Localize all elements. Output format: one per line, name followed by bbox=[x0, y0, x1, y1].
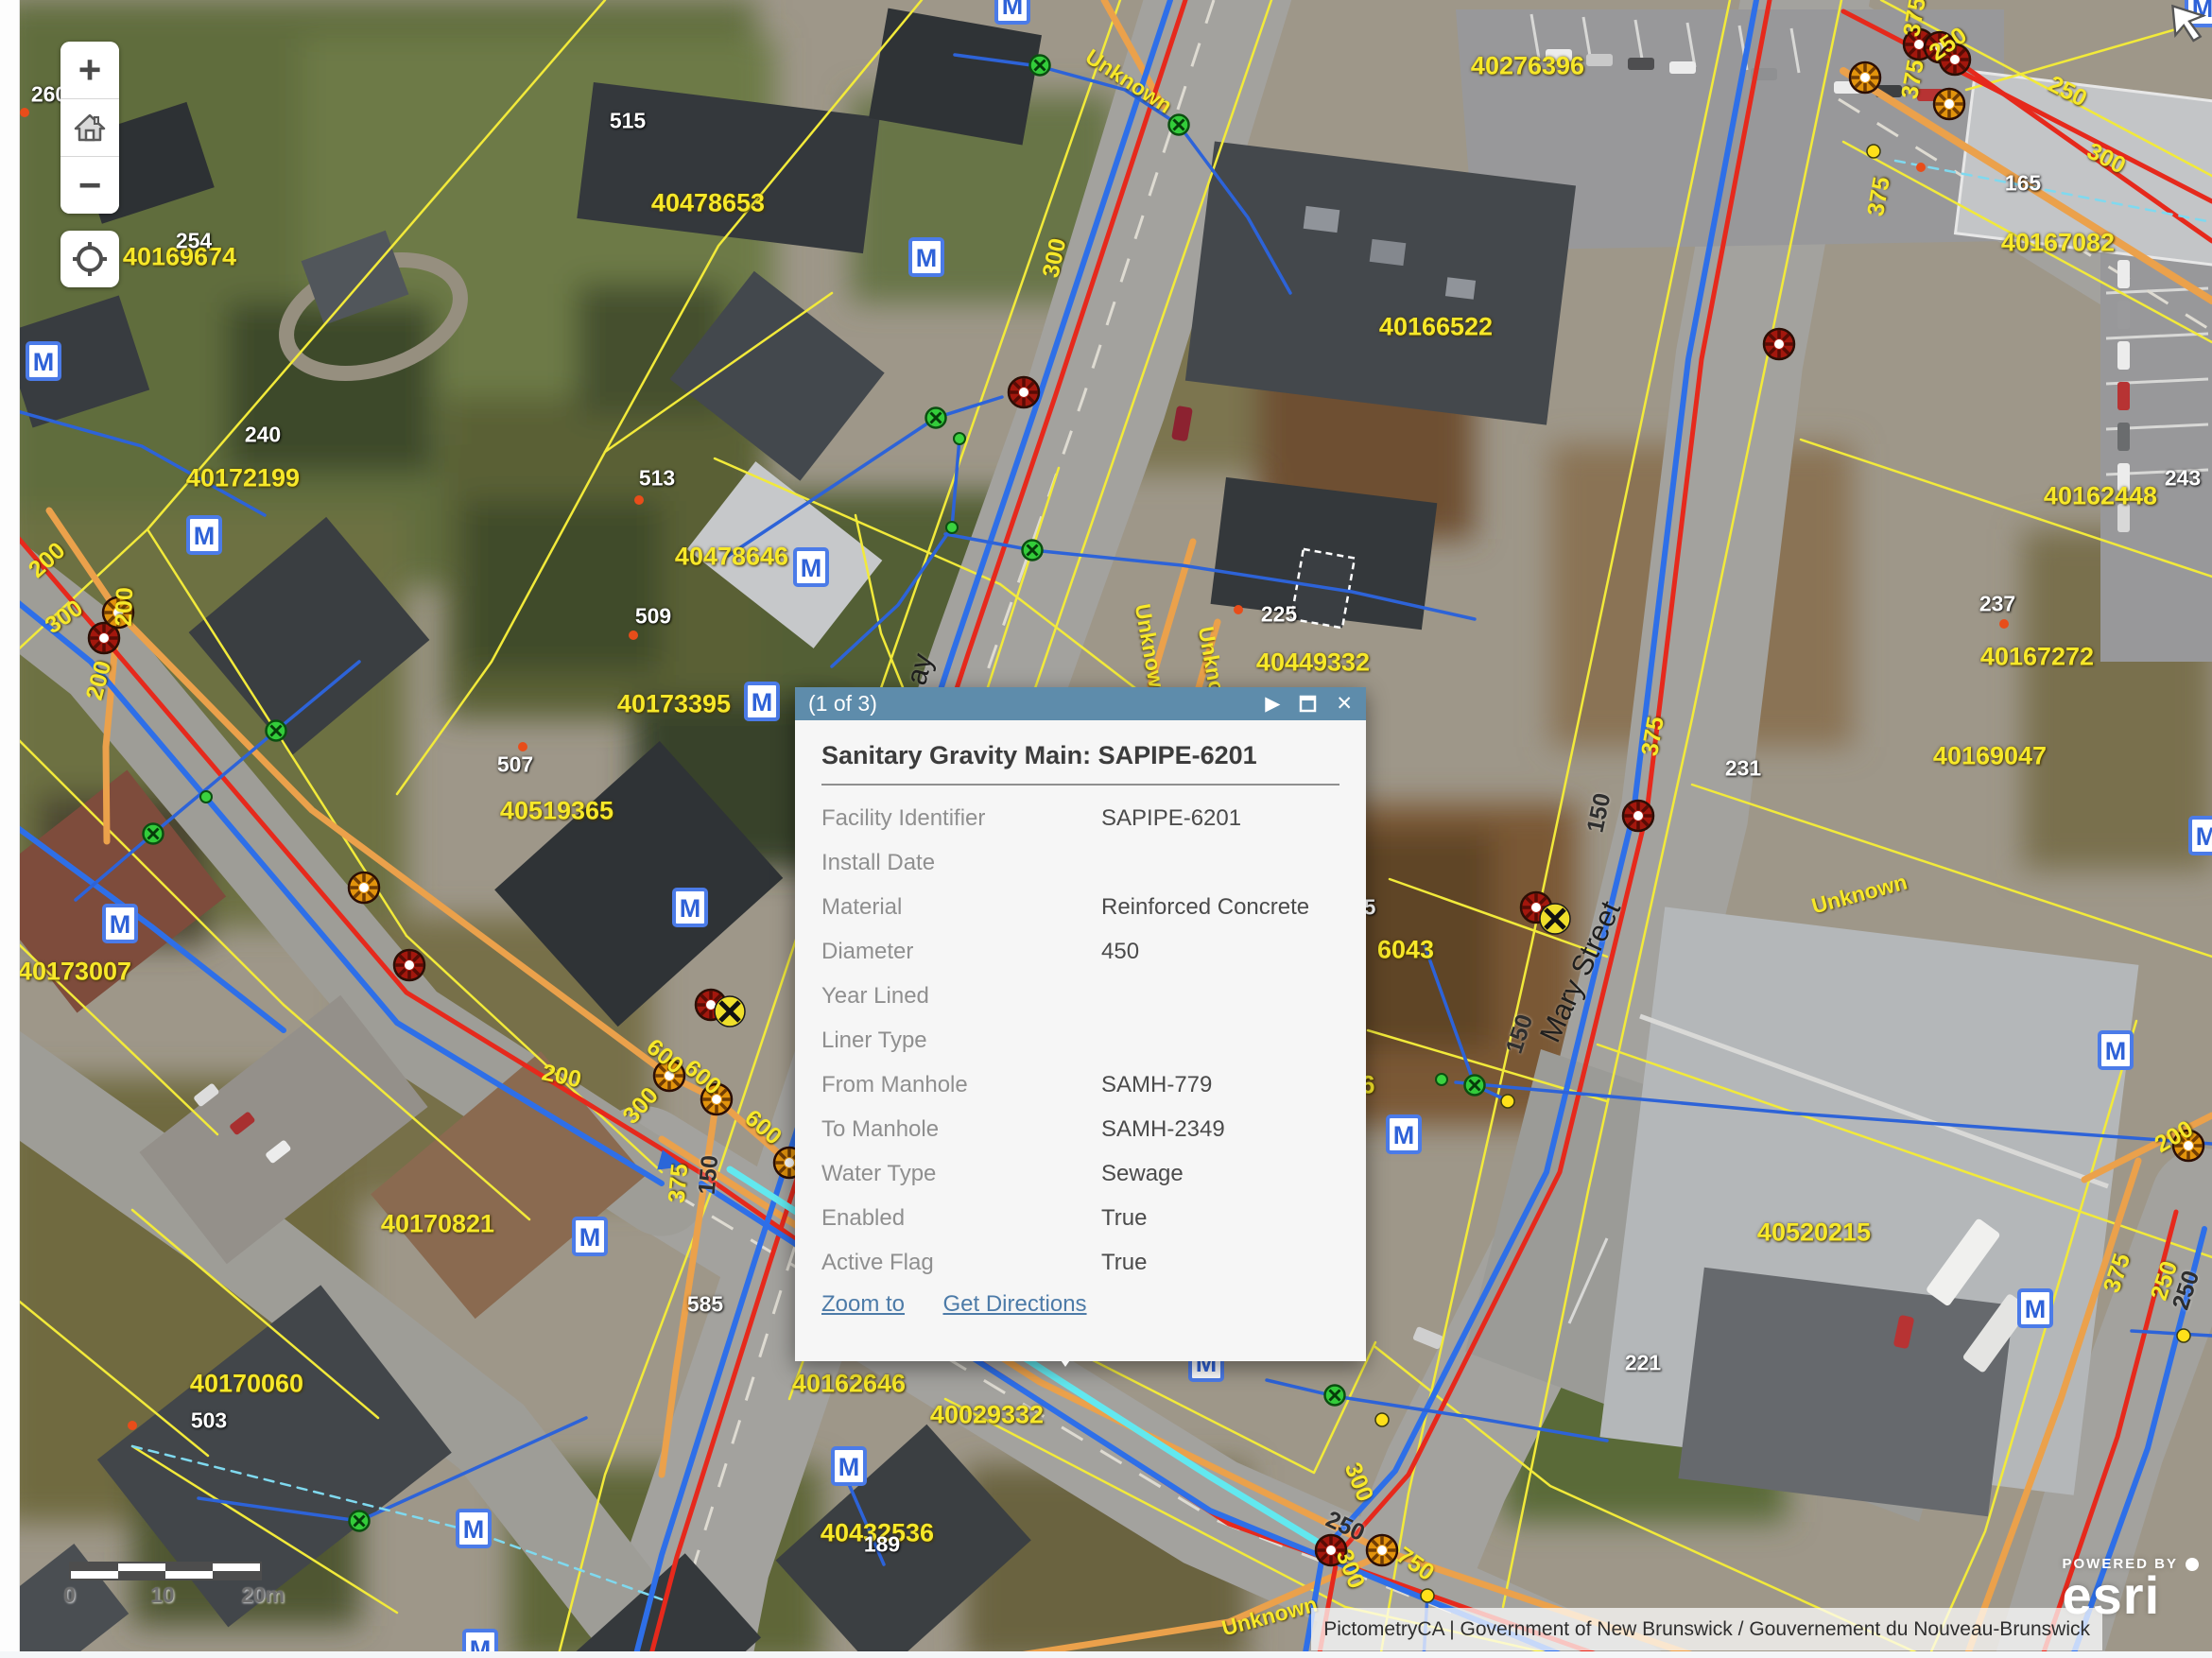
map-label-diaY: 300 bbox=[1330, 1546, 1371, 1593]
map-label-diaY: 200 bbox=[2151, 1115, 2199, 1159]
map-label-house: 237 bbox=[1979, 592, 2015, 617]
field-value: True bbox=[1101, 1202, 1338, 1234]
field-value bbox=[1101, 1025, 1338, 1056]
popup-pager: (1 of 3) bbox=[808, 691, 1246, 717]
map-label-street: Mary Street bbox=[1533, 896, 1628, 1047]
map-label-house: 513 bbox=[639, 466, 675, 492]
map-label-diaY: 200 bbox=[111, 587, 139, 628]
home-button[interactable] bbox=[60, 99, 119, 157]
map-label-diaY: 750 bbox=[1391, 1542, 1440, 1587]
field-value: Sewage bbox=[1101, 1158, 1338, 1189]
popup-field-row: Active FlagTrue bbox=[821, 1247, 1339, 1278]
map-label-parcel: 40478653 bbox=[651, 189, 765, 218]
popup-field-row: Install Date bbox=[821, 847, 1339, 878]
map-label-parcel: 40478646 bbox=[675, 543, 788, 572]
field-label: Install Date bbox=[821, 847, 1101, 878]
field-label: Diameter bbox=[821, 936, 1101, 967]
map-label-parcel: 40166522 bbox=[1379, 313, 1493, 342]
cursor-arrow-icon bbox=[2169, 2, 2210, 48]
map-label-house: 165 bbox=[2005, 171, 2041, 197]
map-label-house: 503 bbox=[191, 1408, 227, 1434]
map-label-diaY: 300 bbox=[2082, 138, 2130, 181]
map-label-diaY: 375 bbox=[2099, 1251, 2136, 1297]
map-label-street: ay bbox=[899, 650, 940, 689]
field-label: Enabled bbox=[821, 1202, 1101, 1234]
zoom-in-button[interactable]: + bbox=[60, 42, 119, 99]
map-label-house: 189 bbox=[864, 1532, 900, 1558]
popup-field-row: Year Lined bbox=[821, 980, 1339, 1011]
popup-header[interactable]: (1 of 3) ▶ ✕ bbox=[795, 687, 1366, 720]
map-label-diaY: 200 bbox=[24, 537, 71, 583]
map-label-diaD: 250 bbox=[1322, 1506, 1369, 1547]
feature-popup: (1 of 3) ▶ ✕ Sanitary Gravity Main: SAPI… bbox=[795, 687, 1366, 1361]
field-label: Facility Identifier bbox=[821, 803, 1101, 834]
map-label-parcel: 40173007 bbox=[19, 958, 131, 987]
map-label-parcel: 40167082 bbox=[2001, 229, 2115, 258]
field-value: SAMH-2349 bbox=[1101, 1114, 1338, 1145]
popup-field-row: To ManholeSAMH-2349 bbox=[821, 1114, 1339, 1145]
field-value: 450 bbox=[1101, 936, 1338, 967]
map-label-diaY: 200 bbox=[540, 1059, 584, 1094]
left-edge-strip bbox=[0, 0, 20, 1658]
field-value: Reinforced Concrete bbox=[1101, 891, 1338, 923]
map-label-parcel: 40520215 bbox=[1757, 1218, 1871, 1248]
map-label-house: 243 bbox=[2165, 466, 2201, 492]
next-feature-button[interactable]: ▶ bbox=[1265, 692, 1280, 716]
map-label-house: 585 bbox=[687, 1292, 723, 1318]
map-label-house: 231 bbox=[1725, 756, 1761, 782]
map-label-diaY: 375 bbox=[1862, 175, 1896, 218]
map-label-diaY: 375 bbox=[664, 1163, 695, 1204]
get-directions-link[interactable]: Get Directions bbox=[942, 1291, 1086, 1317]
field-label: Liner Type bbox=[821, 1025, 1101, 1056]
map-label-parcel: 40519365 bbox=[500, 797, 613, 826]
map-label-parcel: 40276396 bbox=[1471, 52, 1584, 81]
map-label-house: 240 bbox=[245, 423, 281, 448]
map-label-diaD: 150 bbox=[1581, 791, 1616, 836]
map-attribution: PictometryCA | Government of New Brunswi… bbox=[1311, 1608, 2102, 1650]
map-label-house: 515 bbox=[610, 109, 646, 134]
field-label: Year Lined bbox=[821, 980, 1101, 1011]
popup-field-row: MaterialReinforced Concrete bbox=[821, 891, 1339, 923]
close-button[interactable]: ✕ bbox=[1336, 692, 1353, 716]
field-value: SAMH-779 bbox=[1101, 1069, 1338, 1100]
map-label-parcel: 40162646 bbox=[792, 1370, 906, 1399]
popup-fields: Facility IdentifierSAPIPE-6201Install Da… bbox=[821, 803, 1339, 1278]
popup-title: Sanitary Gravity Main: SAPIPE-6201 bbox=[821, 741, 1339, 770]
map-label-diaY: 300 bbox=[1339, 1459, 1379, 1506]
field-value bbox=[1101, 847, 1338, 878]
map-label-parcel: 40172199 bbox=[186, 464, 300, 493]
popup-field-row: EnabledTrue bbox=[821, 1202, 1339, 1234]
map-label-parcel: 40169047 bbox=[1933, 742, 2047, 771]
scale-bar-labels: 0 10 20m bbox=[69, 1580, 262, 1605]
popup-field-row: Water TypeSewage bbox=[821, 1158, 1339, 1189]
field-value: SAPIPE-6201 bbox=[1101, 803, 1338, 834]
zoom-out-button[interactable]: − bbox=[60, 157, 119, 214]
map-label-diaY: 300 bbox=[41, 595, 89, 640]
field-label: From Manhole bbox=[821, 1069, 1101, 1100]
popup-body: Sanitary Gravity Main: SAPIPE-6201 Facil… bbox=[795, 720, 1366, 1318]
gis-map-application: MMMMMMMMMMMMMMMMMM 402763964047865340169… bbox=[0, 0, 2212, 1658]
popup-links: Zoom to Get Directions bbox=[821, 1291, 1339, 1318]
map-label-diaY: 600 bbox=[739, 1104, 787, 1150]
minus-icon: − bbox=[78, 163, 102, 208]
scale-label-20m: 20m bbox=[241, 1582, 285, 1608]
map-label-diaY: 200 bbox=[81, 658, 118, 703]
popup-separator bbox=[821, 784, 1339, 786]
field-value bbox=[1101, 980, 1338, 1011]
locate-icon bbox=[71, 240, 109, 278]
popup-field-row: Diameter450 bbox=[821, 936, 1339, 967]
bottom-edge-strip bbox=[0, 1651, 2212, 1658]
map-label-diaY: 375 bbox=[1636, 715, 1670, 758]
map-label-parcel: 40162448 bbox=[2044, 482, 2157, 511]
esri-globe-dot bbox=[2186, 1558, 2199, 1571]
map-label-unk: Unknown bbox=[1809, 870, 1910, 920]
map-label-house: 507 bbox=[497, 752, 533, 778]
field-label: To Manhole bbox=[821, 1114, 1101, 1145]
map-label-unk: Unknown bbox=[1219, 1592, 1321, 1642]
plus-icon: + bbox=[78, 47, 102, 93]
map-label-house: 509 bbox=[635, 604, 671, 630]
home-icon bbox=[73, 111, 107, 145]
map-label-house: 254 bbox=[176, 229, 212, 254]
scale-bar: 0 10 20m bbox=[69, 1562, 262, 1605]
maximize-icon bbox=[1299, 695, 1317, 713]
map-label-diaY: 375 bbox=[1898, 0, 1932, 39]
zoom-control: + − bbox=[60, 42, 119, 214]
map-label-diaY: 300 bbox=[1037, 236, 1072, 281]
field-label: Active Flag bbox=[821, 1247, 1101, 1278]
map-label-diaD: 150 bbox=[694, 1154, 725, 1196]
map-label-diaY: 250 bbox=[1925, 22, 1973, 67]
field-label: Material bbox=[821, 891, 1101, 923]
map-label-parcel: 40170060 bbox=[190, 1370, 303, 1399]
map-label-parcel: 40029332 bbox=[930, 1401, 1044, 1430]
map-label-parcel: 6043 bbox=[1377, 936, 1434, 965]
field-label: Water Type bbox=[821, 1158, 1101, 1189]
locate-button[interactable] bbox=[60, 231, 119, 287]
map-label-diaD: 150 bbox=[1501, 1011, 1539, 1058]
map-label-parcel: 40167272 bbox=[1980, 643, 2094, 672]
map-label-unk: Unknown bbox=[1080, 43, 1177, 118]
map-label-diaY: 250 bbox=[2044, 71, 2091, 113]
popup-field-row: Liner Type bbox=[821, 1025, 1339, 1056]
map-label-diaY: 300 bbox=[617, 1082, 664, 1130]
map-label-house: 225 bbox=[1261, 602, 1297, 628]
map-label-diaY: 375 bbox=[1896, 58, 1930, 101]
popup-field-row: Facility IdentifierSAPIPE-6201 bbox=[821, 803, 1339, 834]
map-label-parcel: 40449332 bbox=[1256, 648, 1370, 678]
scale-label-10: 10 bbox=[150, 1582, 175, 1608]
popup-field-row: From ManholeSAMH-779 bbox=[821, 1069, 1339, 1100]
scale-label-0: 0 bbox=[63, 1582, 76, 1608]
field-value: True bbox=[1101, 1247, 1338, 1278]
scale-bar-graphic bbox=[69, 1562, 262, 1580]
map-label-parcel: 40170821 bbox=[381, 1210, 494, 1239]
zoom-to-link[interactable]: Zoom to bbox=[821, 1291, 905, 1317]
map-label-house: 221 bbox=[1625, 1351, 1661, 1376]
map-label-parcel: 40173395 bbox=[617, 690, 731, 719]
maximize-button[interactable] bbox=[1299, 695, 1317, 713]
